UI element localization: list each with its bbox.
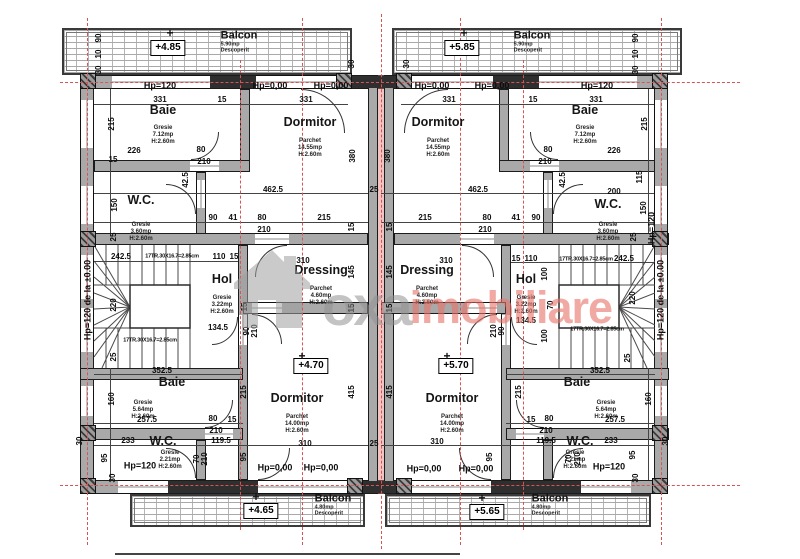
dimension-label: 17TR.30X16.7=2.85cm: [145, 254, 199, 260]
door-opening: [460, 233, 494, 245]
dimension-label: 310: [430, 438, 443, 446]
label-balcon-top-left: Balcon5.90mpDescoperit: [221, 31, 258, 54]
room-specs-baie-top-left: Gresie7.12mpH:2.60m: [151, 125, 174, 146]
dimension-label: 30: [348, 60, 356, 69]
room-specs-wc-bottom-left: Gresie2.21mpH:2.60m: [158, 450, 181, 471]
room-name-baie-bottom-left: Baie: [159, 376, 185, 389]
dimension-label: 30: [632, 66, 640, 75]
dimension-label: 25: [110, 233, 118, 242]
dimension-label: 30: [109, 474, 117, 483]
dimension-label: Hp=0,00: [314, 82, 349, 91]
dimension-label: 15: [109, 156, 118, 164]
door-opening: [543, 180, 553, 208]
dimension-label: Hp=0,00: [459, 465, 494, 474]
pier: [652, 478, 668, 494]
level-marker-balcon-bottom-right: +5.65: [469, 504, 504, 520]
label-balcon-bottom-right: Balcon4.80mpDescoperit: [532, 494, 569, 517]
dimension-label: 25: [370, 186, 379, 194]
pier: [396, 73, 412, 89]
dimension-label: 210: [257, 226, 270, 234]
wall-segment: [491, 481, 581, 493]
room-specs-hol-left: Gresie3.22mpH:2.60m: [210, 295, 233, 316]
room-name-baie-top-right: Baie: [572, 104, 598, 117]
dimension-label: 226: [127, 147, 140, 155]
room-specs-dormitor-bottom-right: Parchet14.00mpH:2.60m: [440, 414, 464, 435]
dimension-label: 25: [630, 233, 638, 242]
dimension-label: 215: [641, 117, 649, 130]
pier: [80, 231, 96, 247]
level-marker-balcon-top-left: +4.85: [150, 40, 185, 56]
interior-wall: [394, 233, 669, 245]
dimension-label: Hp=120: [144, 82, 176, 91]
dimension-label: 95: [240, 453, 248, 462]
dimension-label: Hp=120: [581, 82, 613, 91]
door-arc: [462, 245, 494, 277]
dimension-label: 210: [539, 427, 552, 435]
dimension-label: 70: [547, 301, 555, 310]
pier: [80, 478, 96, 494]
dimension-label: 15: [241, 303, 249, 312]
dimension-label: 210: [538, 158, 551, 166]
dimension-label: 90: [532, 214, 541, 222]
dimension-label: 220: [629, 291, 637, 304]
dimension-label: 95: [101, 454, 109, 463]
dimension-line: [94, 261, 238, 262]
dimension-label: 15: [230, 253, 239, 261]
dimension-label: 15: [228, 416, 237, 424]
dimension-label: 95: [629, 451, 637, 460]
dimension-label: 90: [95, 34, 103, 43]
dimension-label: 215: [418, 214, 431, 222]
room-specs-wc-bottom-right: Gresie2.21mpH:2.60m: [563, 450, 586, 471]
dimension-label: 15: [527, 416, 536, 424]
dimension-label: 80: [545, 415, 554, 423]
dimension-label: 200: [607, 188, 620, 196]
room-name-wc-bottom-right: W.C.: [566, 435, 593, 448]
dimension-label: 10: [632, 50, 640, 59]
interior-wall: [240, 89, 250, 162]
dimension-label: 100: [541, 267, 549, 280]
dimension-line: [648, 368, 649, 480]
dimension-label: 17TR.30X16.7=2.85cm: [123, 338, 177, 344]
dimension-label: 15: [348, 304, 356, 313]
dimension-label: 215: [240, 385, 248, 398]
room-name-dormitor-top-right: Dormitor: [412, 116, 465, 129]
dimension-label: 17TR.30X16.7=2.85cm: [570, 327, 624, 333]
dimension-label: 119.5: [536, 437, 556, 445]
room-specs-baie-bottom-left: Gresie5.64mpH:2.60m: [131, 400, 154, 421]
label-balcon-bottom-left: Balcon4.80mpDescoperit: [315, 494, 352, 517]
room-name-hol-right: Hol: [516, 273, 536, 286]
dimension-label: 210: [201, 452, 209, 465]
balcony-top-left: [62, 28, 352, 75]
dimension-label: 30: [76, 437, 84, 446]
dimension-label: Hp=0,00: [415, 82, 450, 91]
dimension-label: 215: [317, 214, 330, 222]
party-wall: [368, 75, 378, 494]
dimension-label: 134.5: [516, 317, 536, 325]
room-name-dormitor-bottom-left: Dormitor: [271, 392, 324, 405]
dimension-label: Hp=120: [124, 462, 156, 471]
dimension-label: 210: [197, 158, 210, 166]
dimension-label: 25: [624, 354, 632, 363]
dimension-label: 25: [370, 440, 379, 448]
dimension-label: 160: [108, 392, 116, 405]
floor-plan: oxa imobiliare Hp=120Hp=0,00Hp=0,00Hp=0,…: [0, 0, 800, 559]
dimension-label: 90: [632, 34, 640, 43]
room-specs-dressing-left: Parchet4.60mpH:2.60m: [309, 286, 332, 307]
room-specs-dressing-right: Parchet4.60mpH:2.60m: [415, 286, 438, 307]
party-wall: [384, 75, 394, 494]
dimension-label: 110: [213, 253, 226, 261]
room-name-dormitor-bottom-right: Dormitor: [426, 392, 479, 405]
level-marker-balcon-top-right: +5.85: [444, 40, 479, 56]
level-cross-interior-0: +: [298, 349, 305, 363]
dimension-label: Hp=0,00: [304, 464, 339, 473]
dimension-label: 226: [607, 147, 620, 155]
dimension-label: 25: [110, 353, 118, 362]
level-cross-balcon-bottom-right: +: [478, 491, 485, 505]
dimension-label: 150: [111, 198, 119, 211]
dimension-label: 80: [197, 146, 206, 154]
dimension-label: 210: [490, 324, 498, 337]
dimension-label: Hp=0,00: [258, 464, 293, 473]
dimension-label: 331: [299, 96, 312, 104]
dimension-label: 30: [632, 474, 640, 483]
room-name-wc-top-right: W.C.: [594, 198, 621, 211]
dimension-label: Hp=120: [593, 463, 625, 472]
room-name-dressing-left: Dressing: [294, 264, 348, 277]
dimension-label: 42.5: [559, 172, 567, 188]
pier: [396, 478, 412, 494]
dimension-line: [110, 368, 111, 480]
dimension-label: 42.5: [182, 172, 190, 188]
dimension-label: 380: [384, 149, 392, 162]
dimension-label: Hp=120 de la ±0.00: [84, 260, 93, 340]
dimension-line: [381, 445, 654, 446]
dimension-label: 415: [386, 385, 394, 398]
dimension-label: 30: [662, 437, 670, 446]
dimension-label: 233: [121, 437, 134, 445]
level-cross-interior-1: +: [443, 349, 450, 363]
wall-segment: [168, 481, 258, 493]
room-specs-dormitor-top-right: Parchet14.55mpH:2.60m: [426, 138, 450, 159]
door-opening: [196, 180, 206, 208]
dimension-label: 115: [636, 171, 644, 184]
dimension-label: 80: [483, 214, 492, 222]
dimension-label: 15: [386, 223, 394, 232]
dimension-label: 15: [348, 223, 356, 232]
dimension-label: 90: [498, 327, 506, 336]
staircase-right: [545, 245, 655, 368]
room-specs-wc-top-right: Gresie3.60mpH:2.60m: [596, 222, 619, 243]
dimension-label: 30: [403, 60, 411, 69]
room-name-dormitor-top-left: Dormitor: [284, 116, 337, 129]
dimension-label: 134.5: [208, 324, 228, 332]
dimension-label: 15: [218, 96, 227, 104]
room-specs-wc-top-left: Gresie3.60mpH:2.60m: [129, 222, 152, 243]
dimension-label: Hp=120 de la ±0.00: [657, 260, 666, 340]
room-name-baie-top-left: Baie: [150, 104, 176, 117]
dimension-label: 210: [251, 324, 259, 337]
door-opening: [255, 233, 289, 245]
level-cross-balcon-bottom-left: +: [252, 490, 259, 504]
dimension-line: [94, 445, 368, 446]
room-specs-hol-right: Gresie3.22mpH:2.60m: [514, 295, 537, 316]
dimension-label: 10: [95, 50, 103, 59]
dimension-label: 462.5: [468, 186, 488, 194]
dimension-label: 352.5: [590, 367, 610, 375]
pier: [80, 73, 96, 89]
door-arc: [166, 184, 196, 214]
room-name-hol-left: Hol: [212, 273, 232, 286]
room-specs-baie-top-right: Gresie7.12mpH:2.60m: [573, 125, 596, 146]
room-name-wc-bottom-left: W.C.: [149, 435, 176, 448]
dimension-label: 15: [512, 255, 521, 263]
dimension-label: 41: [512, 214, 521, 222]
dimension-label: 80: [209, 415, 218, 423]
dimension-label: 233: [604, 437, 617, 445]
dimension-label: 462.5: [263, 186, 283, 194]
dimension-label: 95: [486, 453, 494, 462]
dimension-label: 145: [386, 265, 394, 278]
label-balcon-top-right: Balcon5.90mpDescoperit: [514, 31, 551, 54]
door-arc: [255, 245, 287, 277]
room-specs-dormitor-bottom-left: Parchet14.00mpH:2.60m: [285, 414, 309, 435]
level-cross-balcon-top-left: +: [166, 26, 173, 40]
dimension-label: Hp=120: [648, 212, 657, 244]
axis-line: [60, 485, 740, 486]
dimension-label: 119.5: [211, 437, 231, 445]
dimension-label: 41: [229, 214, 238, 222]
balcony-bottom-right: [385, 494, 651, 527]
window: [118, 480, 168, 494]
dimension-label: 415: [348, 385, 356, 398]
dimension-label: 90: [209, 214, 218, 222]
dimension-label: 110: [525, 255, 538, 263]
dimension-label: 215: [108, 117, 116, 130]
dimension-label: 331: [442, 96, 455, 104]
dimension-label: 310: [298, 440, 311, 448]
interior-wall: [543, 440, 553, 480]
dimension-label: 380: [349, 149, 357, 162]
dimension-label: 15: [529, 96, 538, 104]
room-specs-dormitor-top-left: Parchet14.55mpH:2.60m: [298, 138, 322, 159]
dimension-label: 242.5: [614, 255, 634, 263]
dimension-label: 160: [645, 392, 653, 405]
dimension-label: Hp=0,00: [253, 82, 288, 91]
dimension-label: 210: [478, 226, 491, 234]
window: [581, 480, 631, 494]
dimension-label: 215: [515, 385, 523, 398]
room-specs-baie-bottom-right: Gresie5.64mpH:2.60m: [594, 400, 617, 421]
dimension-label: 145: [348, 265, 356, 278]
room-name-baie-bottom-right: Baie: [564, 376, 590, 389]
interior-wall: [499, 89, 509, 162]
door-opening: [467, 302, 497, 314]
dimension-label: Hp=0,00: [407, 465, 442, 474]
dimension-label: Hp=0,00: [475, 82, 510, 91]
dimension-label: 100: [541, 329, 549, 342]
dimension-label: 17TR.30X16.7=2.85cm: [559, 257, 613, 263]
pier: [652, 73, 668, 89]
dimension-label: 80: [258, 214, 267, 222]
dimension-label: 242.5: [111, 253, 131, 261]
dimension-label: 220: [110, 298, 118, 311]
level-marker-balcon-bottom-left: +4.65: [243, 503, 278, 519]
level-cross-balcon-top-right: +: [460, 26, 467, 40]
door-arc: [553, 184, 583, 214]
dimension-label: 210: [209, 427, 222, 435]
dimension-label: 30: [95, 66, 103, 75]
dimension-label: 80: [544, 146, 553, 154]
dimension-label: 15: [386, 304, 394, 313]
door-opening: [252, 302, 282, 314]
cut-line: [115, 553, 460, 555]
axis-line: [381, 14, 382, 549]
room-name-dressing-right: Dressing: [400, 264, 454, 277]
room-name-wc-top-left: W.C.: [127, 194, 154, 207]
interior-wall: [80, 233, 368, 245]
